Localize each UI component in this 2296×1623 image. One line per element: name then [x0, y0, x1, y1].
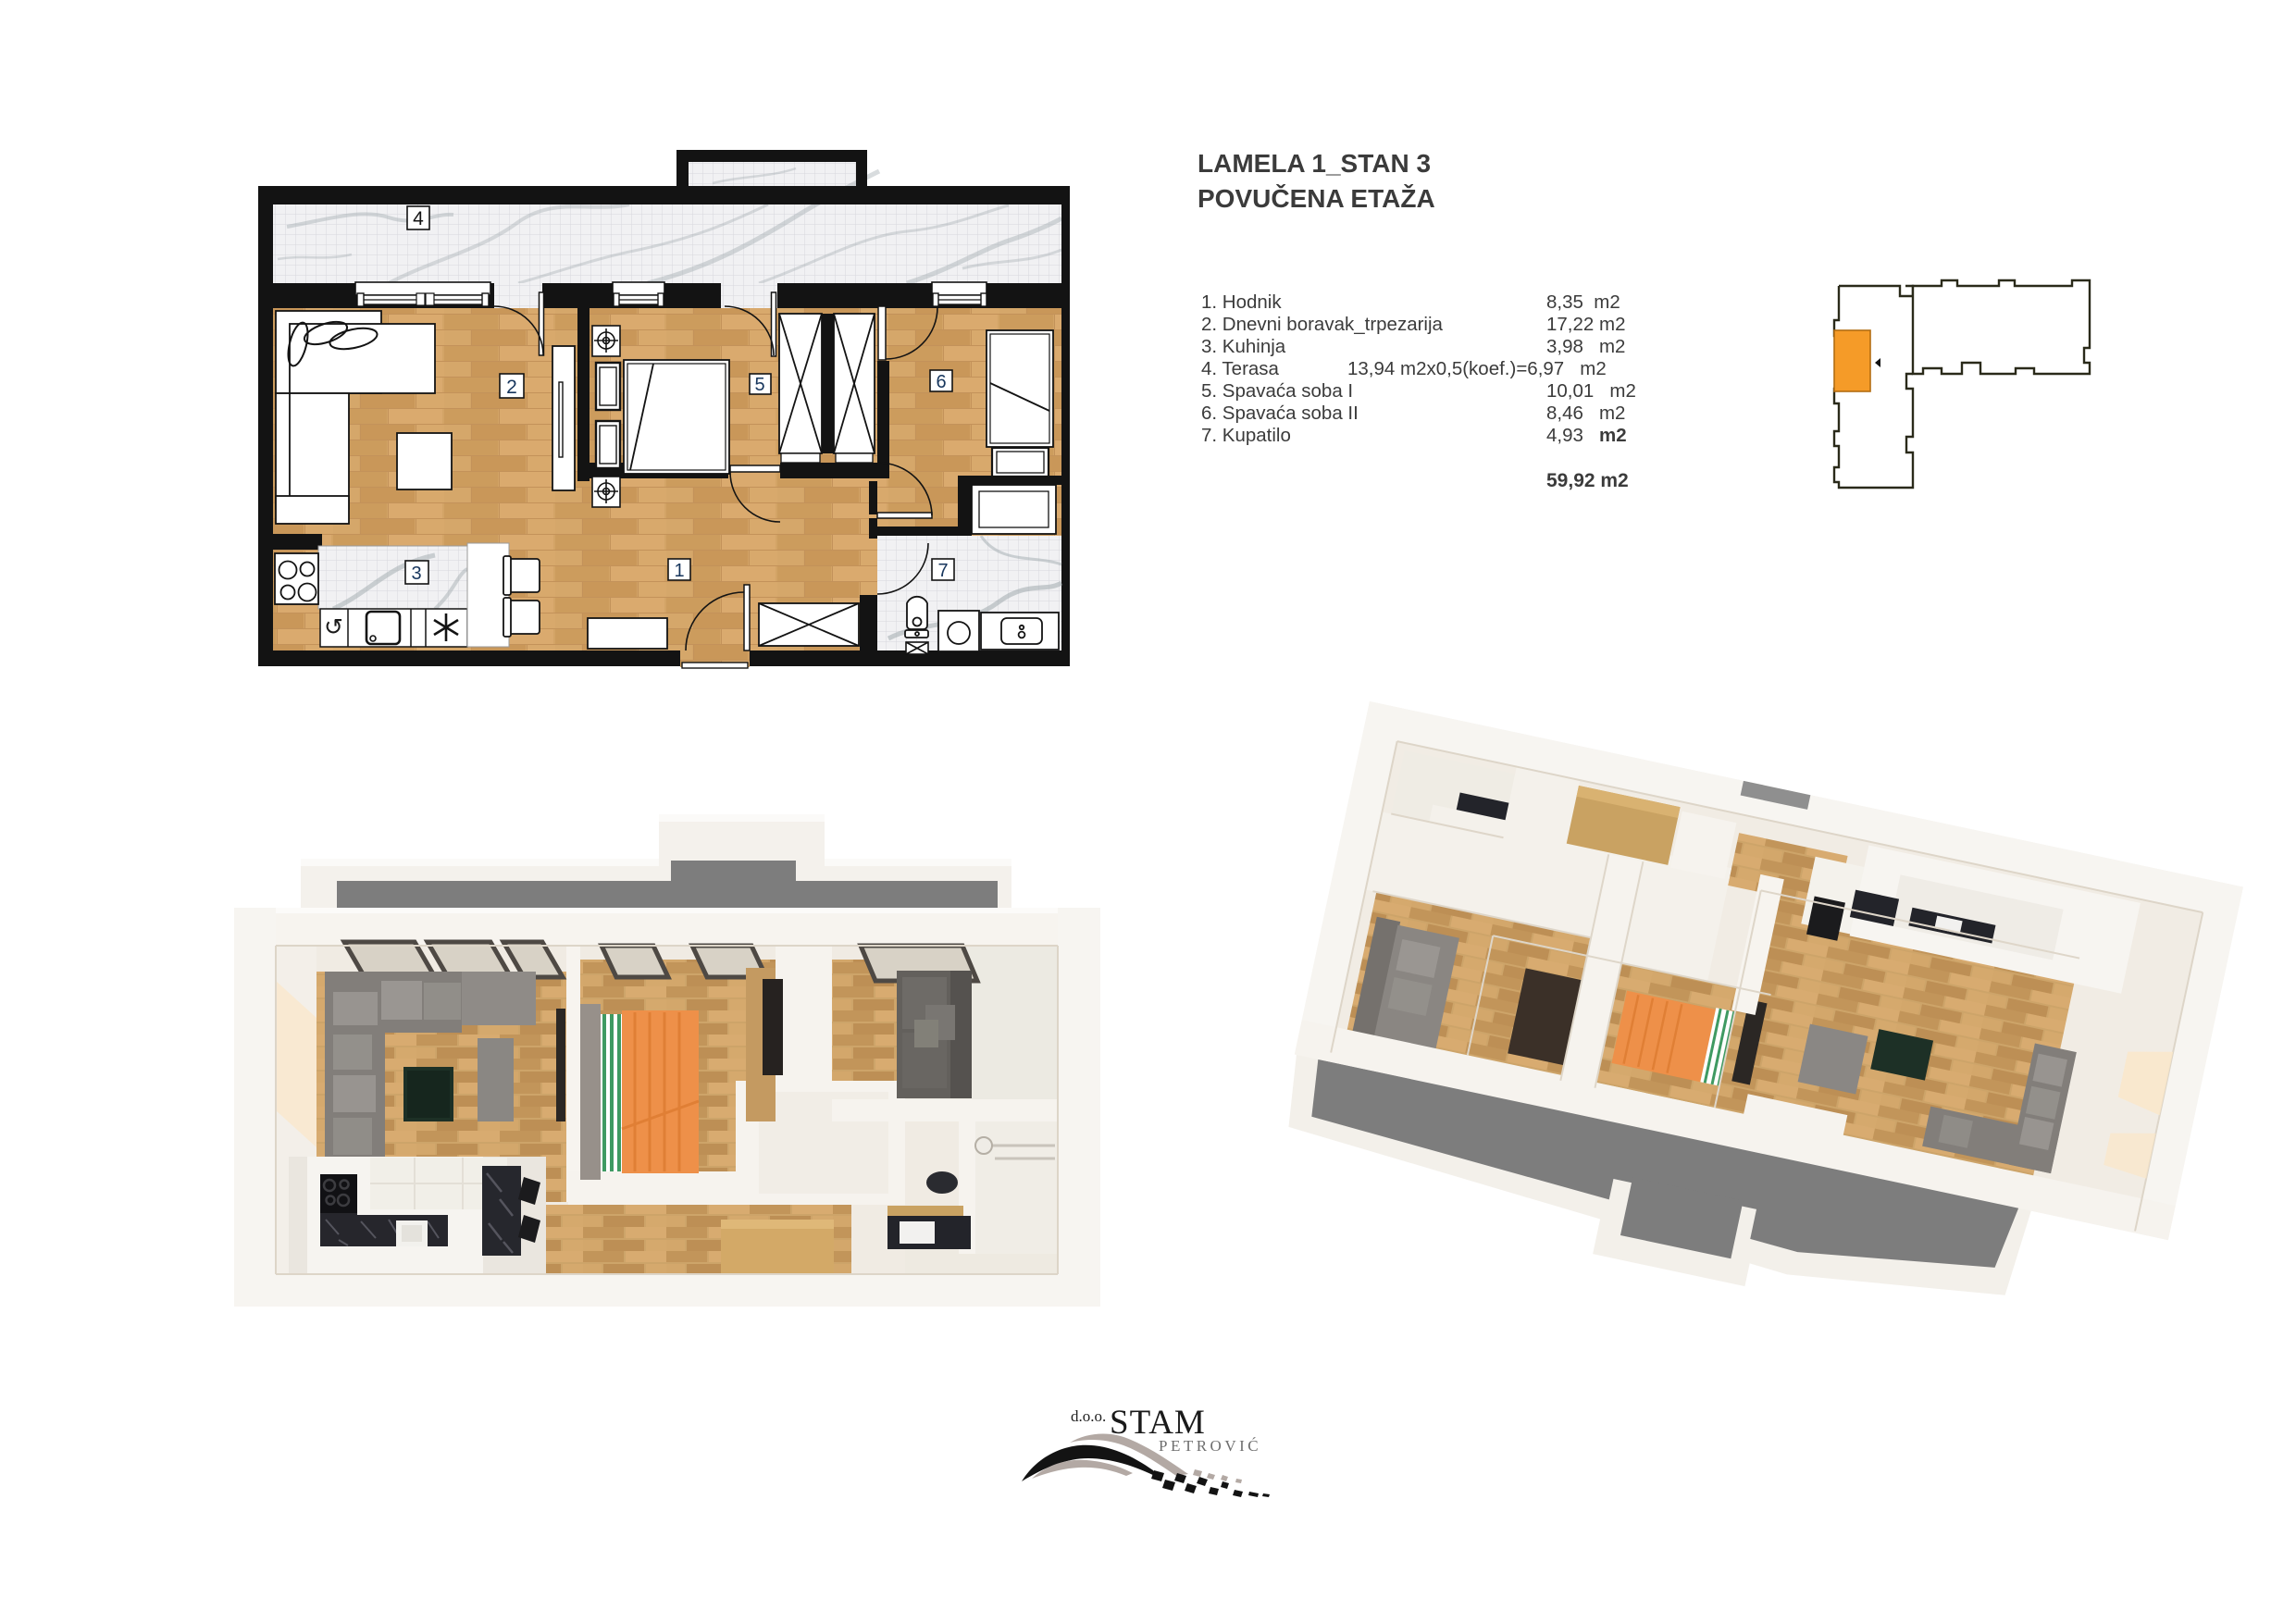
- svg-text:5: 5: [754, 375, 764, 395]
- svg-text:1: 1: [674, 561, 684, 581]
- svg-text:4: 4: [413, 208, 424, 229]
- svg-text:6: 6: [936, 372, 946, 392]
- svg-text:3: 3: [411, 564, 421, 584]
- svg-text:7: 7: [937, 561, 948, 581]
- svg-text:↺: ↺: [324, 614, 343, 640]
- svg-text:2: 2: [506, 377, 517, 398]
